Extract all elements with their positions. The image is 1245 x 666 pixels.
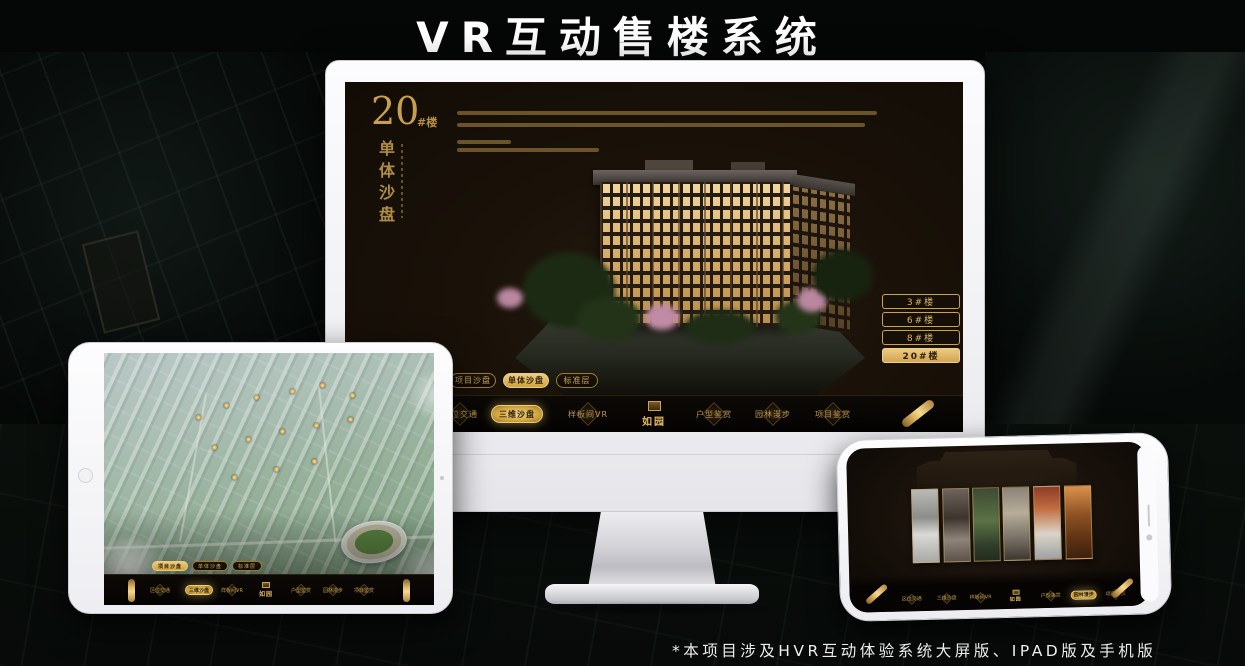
panorama-card-shelves[interactable] [1064,485,1093,560]
nav-item-unit-appreciation[interactable]: 户型鉴赏 [1040,583,1061,608]
tablet-tab-single-sandtable[interactable]: 单体沙盘 [192,561,228,571]
nav-item-unit-appreciation[interactable]: 户型鉴赏 [696,396,732,432]
seal-icon [1012,590,1019,595]
nav-item-showroom-vr[interactable]: 样板间VR [969,584,992,610]
tree-foliage [813,250,873,302]
panorama-card-interior[interactable] [942,488,971,563]
intro-text-line [457,148,599,152]
footnote-text: *本项目涉及HVR互动体验系统大屏版、IPAD版及手机版 [672,639,1156,661]
nav-item-showroom-vr[interactable]: 样板间VR [221,575,243,605]
blossom-tree [497,288,523,308]
building-number-suffix: #楼 [417,114,437,130]
vertical-english-caption [401,144,403,218]
phone-screen: 区位交通 三维沙盘 样板间VR 如园 户型鉴赏 园林漫步 [846,442,1150,613]
tablet-tab-project-sandtable[interactable]: 项目沙盘 [152,561,188,571]
tablet-nav-bar: 区位交通 三维沙盘 样板间VR 如园 户型鉴赏 [104,574,434,605]
tab-standard-floor[interactable]: 标准层 [556,373,598,388]
building-number: 20 [371,92,419,130]
scroll-icon[interactable] [900,398,935,428]
poster-canvas: VR互动售楼系统 20 #楼 单体沙盘 [0,0,1245,666]
tablet-screen: 项目沙盘 单体沙盘 标准层 区位交通 三维沙盘 样板间VR [104,353,434,605]
home-button[interactable] [78,468,93,483]
floor-button-8[interactable]: 8#楼 [882,330,960,345]
background-aerial-right [985,52,1245,452]
intro-text-line [457,140,511,144]
tab-project-sandtable[interactable]: 项目沙盘 [450,373,496,388]
intro-text-line [457,123,865,127]
floor-button-3[interactable]: 3#楼 [882,294,960,309]
scroll-icon[interactable] [128,579,135,602]
tab-single-sandtable[interactable]: 单体沙盘 [503,373,549,388]
nav-item-location-traffic[interactable]: 区位交通 [150,575,170,605]
monitor-base [545,584,759,604]
camera-icon [440,476,444,480]
panorama-card-autumn[interactable] [1033,486,1062,561]
tree-foliage [685,310,755,344]
nav-item-3d-sandtable[interactable]: 三维沙盘 [936,585,957,610]
nav-item-unit-appreciation[interactable]: 户型鉴赏 [291,575,311,605]
camera-icon [1146,534,1152,540]
nav-item-project-appreciation[interactable]: 项目鉴赏 [354,575,374,605]
phone-nav-bar: 区位交通 三维沙盘 样板间VR 如园 户型鉴赏 园林漫步 [849,568,1150,612]
nav-item-location-traffic[interactable]: 区位交通 [901,586,922,611]
seal-icon [648,401,661,411]
nav-item-showroom-vr[interactable]: 样板间VR [568,396,608,432]
brand-logo[interactable]: 如园 [1009,584,1022,609]
phone-mockup: 区位交通 三维沙盘 样板间VR 如园 户型鉴赏 园林漫步 [836,432,1172,622]
monitor-shadow [515,602,790,616]
seal-icon [262,582,270,588]
tree-foliage [577,297,641,341]
nav-item-3d-sandtable[interactable]: 三维沙盘 [189,575,209,605]
brand-logo[interactable]: 如园 [259,575,273,605]
scroll-icon[interactable] [865,583,888,605]
section-title-vertical: 单体沙盘 [373,140,397,260]
nav-item-garden-walk[interactable]: 园林漫步 [1073,582,1094,607]
panorama-card-garden[interactable] [972,487,1001,562]
panorama-card-courtyard[interactable] [911,489,940,564]
scroll-icon[interactable] [403,579,410,602]
tablet-tab-standard-floor[interactable]: 标准层 [232,561,262,571]
nav-item-garden-walk[interactable]: 园林漫步 [323,575,343,605]
nav-item-garden-walk[interactable]: 园林漫步 [755,396,791,432]
floor-button-6[interactable]: 6#楼 [882,312,960,327]
brand-logo[interactable]: 如园 [642,396,666,432]
monitor-stand [588,512,716,588]
panorama-card-building[interactable] [1002,486,1031,561]
nav-item-3d-sandtable[interactable]: 三维沙盘 [499,396,535,432]
intro-text-line [457,111,877,115]
floor-button-20[interactable]: 20#楼 [882,348,960,363]
page-title: VR互动售楼系统 [0,4,1245,65]
nav-item-project-appreciation[interactable]: 项目鉴赏 [815,396,851,432]
tablet-frame: 项目沙盘 单体沙盘 标准层 区位交通 三维沙盘 样板间VR [68,342,453,614]
blossom-tree [645,304,679,330]
